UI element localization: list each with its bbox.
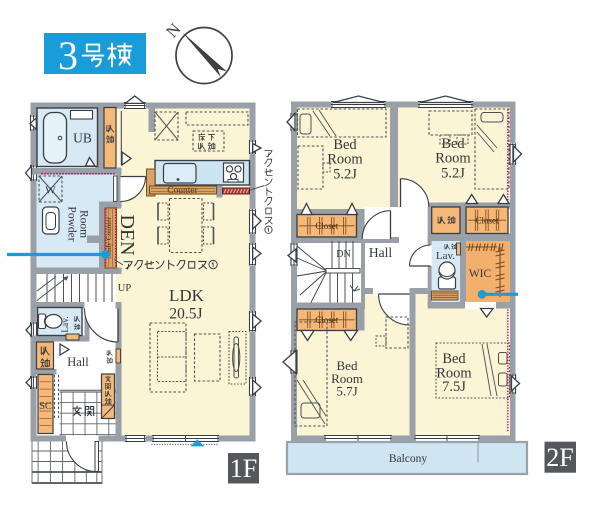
svg-text:Hall: Hall (67, 355, 89, 369)
svg-text:20.5J: 20.5J (169, 306, 202, 323)
svg-text:UP: UP (118, 283, 132, 294)
svg-text:Balcony: Balcony (389, 453, 428, 465)
svg-text:WIC: WIC (469, 268, 492, 280)
svg-text:DN: DN (336, 249, 350, 260)
svg-text:7.5J: 7.5J (442, 379, 466, 395)
svg-text:LDK: LDK (169, 286, 205, 305)
svg-text:UB: UB (73, 131, 92, 146)
svg-text:3: 3 (58, 33, 78, 78)
svg-text:Closet: Closet (315, 221, 339, 231)
svg-text:Counter: Counter (167, 186, 198, 196)
svg-text:Lav.: Lav. (436, 250, 455, 262)
svg-text:Closet: Closet (475, 215, 499, 225)
svg-text:5.7J: 5.7J (336, 384, 357, 399)
svg-text:Room: Room (78, 210, 90, 238)
svg-text:Room: Room (327, 152, 363, 168)
svg-text:Room: Room (435, 151, 471, 167)
svg-text:W: W (45, 185, 56, 197)
svg-text:Powder: Powder (66, 206, 78, 241)
svg-text:5.2J: 5.2J (333, 167, 357, 183)
svg-text:Lav.: Lav. (61, 316, 71, 333)
svg-text:Hall: Hall (369, 245, 392, 260)
svg-text:2F: 2F (546, 443, 573, 472)
svg-text:SC: SC (39, 401, 52, 412)
svg-text:5.2J: 5.2J (441, 166, 465, 182)
svg-text:1F: 1F (230, 454, 257, 483)
svg-text:DEN: DEN (116, 214, 138, 255)
